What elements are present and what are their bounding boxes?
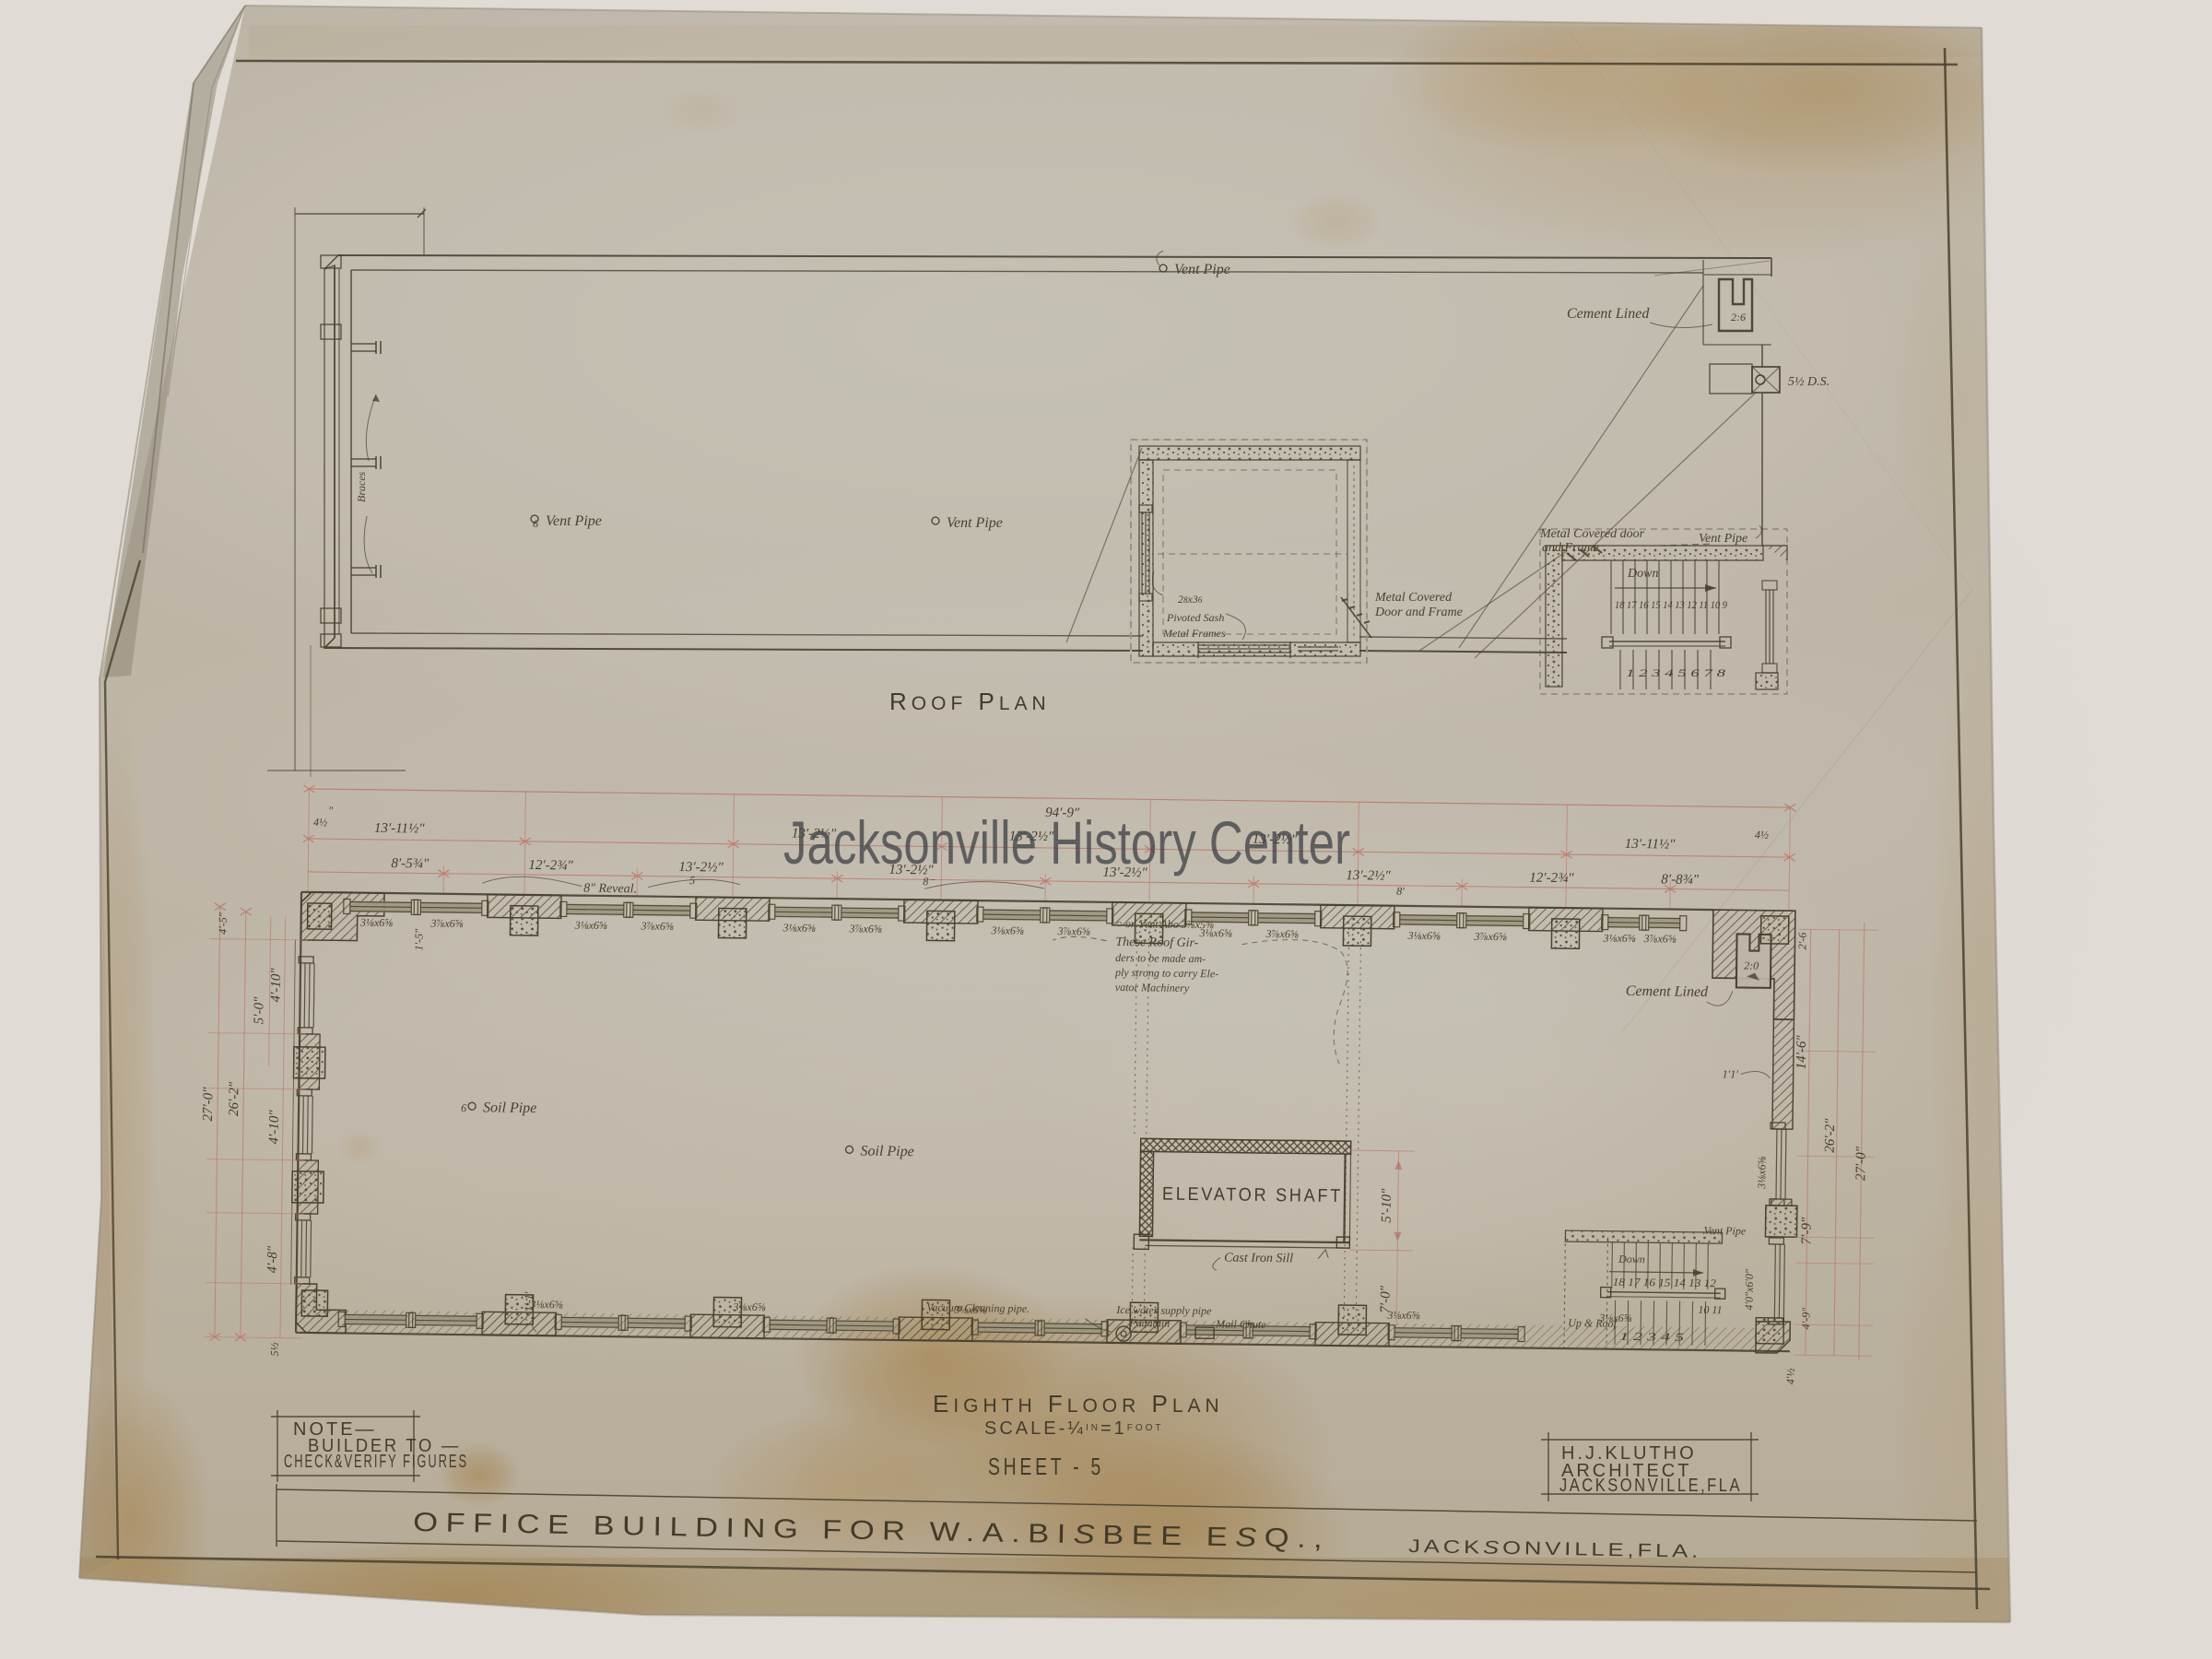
svg-text:Down: Down xyxy=(1618,1253,1645,1265)
svg-text:8⁻: 8⁻ xyxy=(923,875,935,888)
svg-text:Cement Lined: Cement Lined xyxy=(1567,306,1650,322)
svg-text:8′: 8′ xyxy=(1396,885,1405,898)
svg-text:Ice water supply pipe: Ice water supply pipe xyxy=(1115,1303,1212,1317)
svg-text:○ on Vent Abo 3⅞x5⅝: ○ on Vent Abo 3⅞x5⅝ xyxy=(1116,917,1215,931)
svg-text:Braces: Braces xyxy=(355,471,368,502)
svg-text:3⅞x6⅝: 3⅞x6⅝ xyxy=(1642,932,1677,945)
svg-text:3⅛x6⅝: 3⅛x6⅝ xyxy=(574,919,608,932)
svg-text:1′1′: 1′1′ xyxy=(1723,1067,1739,1080)
svg-text:Cast Iron Sill: Cast Iron Sill xyxy=(1224,1251,1293,1265)
svg-text:3⅛x6⅝: 3⅛x6⅝ xyxy=(1406,929,1441,942)
svg-text:26′-2″: 26′-2″ xyxy=(1823,1118,1838,1153)
svg-text:Up & Roof: Up & Roof xyxy=(1568,1316,1618,1330)
svg-text:6: 6 xyxy=(461,1101,466,1114)
svg-text:1 2 3 4 5 6 7 8: 1 2 3 4 5 6 7 8 xyxy=(1626,666,1725,679)
svg-text:3⅞x6⅝: 3⅞x6⅝ xyxy=(849,922,883,935)
svg-text:3⅛x6⅝: 3⅛x6⅝ xyxy=(359,916,394,929)
svg-text:Pivoted Sash: Pivoted Sash xyxy=(1166,611,1224,624)
svg-text:Vent Pipe: Vent Pipe xyxy=(1699,532,1747,546)
svg-text:3⅞x6⅝: 3⅞x6⅝ xyxy=(1056,924,1090,937)
svg-text:5½: 5½ xyxy=(268,1342,281,1356)
svg-text:3⅛x6⅝: 3⅛x6⅝ xyxy=(732,1300,766,1313)
svg-text:2:0: 2:0 xyxy=(1744,959,1759,972)
svg-text:3⅛x6⅝: 3⅛x6⅝ xyxy=(782,921,817,934)
svg-text:5½ D.S.: 5½ D.S. xyxy=(1788,375,1830,389)
svg-text:Vacuum Cleaning pipe.: Vacuum Cleaning pipe. xyxy=(926,1300,1030,1314)
svg-text:18 17 16 15 14 13 12 11 10 9: 18 17 16 15 14 13 12 11 10 9 xyxy=(1615,598,1727,611)
svg-text:3⅛x6⅝: 3⅛x6⅝ xyxy=(1755,1156,1768,1190)
svg-text:4′-9″: 4′-9″ xyxy=(1799,1307,1812,1330)
svg-text:Jacksonville History Center: Jacksonville History Center xyxy=(783,808,1350,877)
svg-text:Metal Covered door: Metal Covered door xyxy=(1539,527,1645,541)
svg-text:27′-0″: 27′-0″ xyxy=(201,1087,216,1122)
svg-text:13′-11½″: 13′-11½″ xyxy=(374,821,426,837)
svg-text:Mail Chute: Mail Chute xyxy=(1215,1317,1266,1331)
svg-text:7′-9″: 7′-9″ xyxy=(1799,1217,1814,1244)
svg-text:Door and Frame: Door and Frame xyxy=(1374,606,1463,619)
svg-text:ply strong to carry Ele-: ply strong to carry Ele- xyxy=(1114,966,1218,980)
svg-text:13′-2½″: 13′-2½″ xyxy=(678,860,724,876)
svg-text:18 17 16 15 14 13 12: 18 17 16 15 14 13 12 xyxy=(1613,1276,1716,1289)
svg-text:1′-1′: 1′-1′ xyxy=(522,1291,535,1312)
svg-text:4′-5″: 4′-5″ xyxy=(216,912,229,935)
svg-text:Fountain: Fountain xyxy=(1128,1316,1170,1330)
svg-text:JACKSONVILLE,FLA: JACKSONVILLE,FLA xyxy=(1559,1476,1742,1496)
svg-text:8″ Reveal.: 8″ Reveal. xyxy=(583,882,637,897)
svg-text:4′½: 4′½ xyxy=(1783,1368,1796,1384)
svg-text:Vent Pipe: Vent Pipe xyxy=(947,515,1003,531)
svg-text:SHEET - 5: SHEET - 5 xyxy=(988,1453,1104,1480)
svg-text:27′-0″: 27′-0″ xyxy=(1853,1146,1868,1181)
svg-text:Cement Lined: Cement Lined xyxy=(1626,983,1710,1000)
svg-text:3⅞x6⅝: 3⅞x6⅝ xyxy=(641,919,675,932)
svg-text:4′0″x6′0″: 4′0″x6′0″ xyxy=(1742,1268,1756,1311)
svg-text:Down: Down xyxy=(1627,567,1658,581)
svg-text:Soil Pipe: Soil Pipe xyxy=(860,1143,913,1159)
svg-text:13′-2½″: 13′-2½″ xyxy=(1346,868,1391,884)
svg-text:3⅛x6⅝: 3⅛x6⅝ xyxy=(990,924,1024,936)
svg-text:Soil Pipe: Soil Pipe xyxy=(483,1100,536,1116)
svg-text:1′-5″: 1′-5″ xyxy=(412,928,425,951)
svg-text:4′-8″: 4′-8″ xyxy=(265,1245,280,1273)
svg-text:3⅞x6⅝: 3⅞x6⅝ xyxy=(429,917,464,930)
svg-text:Vent Pipe: Vent Pipe xyxy=(1174,262,1230,277)
svg-text:3⅛x6⅝: 3⅛x6⅝ xyxy=(1602,932,1636,945)
svg-text:2:6: 2:6 xyxy=(1731,311,1746,324)
svg-text:4½: 4½ xyxy=(313,816,327,829)
svg-text:26′-2″: 26′-2″ xyxy=(227,1081,241,1116)
svg-text:8′-8¾″: 8′-8¾″ xyxy=(1661,872,1700,888)
svg-text:3⅞x6⅝: 3⅞x6⅝ xyxy=(1265,927,1299,940)
svg-text:14′-6″: 14′-6″ xyxy=(1794,1034,1809,1069)
svg-text:5′-10″: 5′-10″ xyxy=(1380,1188,1394,1223)
svg-text:4½: 4½ xyxy=(1755,829,1769,841)
svg-text:CHECK&VERIFY FIGURES: CHECK&VERIFY FIGURES xyxy=(284,1452,468,1472)
svg-text:These Roof Gir-: These Roof Gir- xyxy=(1115,935,1198,950)
svg-text:Vent Pipe: Vent Pipe xyxy=(546,513,602,529)
svg-text:ders to be made am-: ders to be made am- xyxy=(1115,951,1206,965)
svg-text:3⅞x6⅝: 3⅞x6⅝ xyxy=(1473,930,1507,943)
svg-text:12′-2¾″: 12′-2¾″ xyxy=(1529,871,1574,887)
svg-text:Metal Frames: Metal Frames xyxy=(1162,627,1226,640)
svg-text:and Frame: and Frame xyxy=(1542,541,1599,555)
svg-text:5: 5 xyxy=(689,874,695,887)
svg-text:28x36: 28x36 xyxy=(1178,593,1203,606)
svg-text:13′-11½″: 13′-11½″ xyxy=(1625,837,1677,853)
svg-text:1 2 3 4 5: 1 2 3 4 5 xyxy=(1619,1330,1684,1344)
svg-text:vator Machinery: vator Machinery xyxy=(1115,981,1190,994)
svg-text:4′-10″: 4′-10″ xyxy=(269,968,284,1003)
svg-text:10 11: 10 11 xyxy=(1698,1303,1722,1316)
svg-text:Metal Covered: Metal Covered xyxy=(1374,591,1453,605)
svg-text:2′-6: 2′-6 xyxy=(1795,933,1808,950)
svg-text:12′-2¾″: 12′-2¾″ xyxy=(528,858,573,874)
svg-text:ELEVATOR SHAFT: ELEVATOR SHAFT xyxy=(1162,1184,1343,1206)
svg-text:5′-0″: 5′-0″ xyxy=(252,996,266,1024)
svg-text:8′-5¾″: 8′-5¾″ xyxy=(391,856,429,872)
svg-text:7′-0″: 7′-0″ xyxy=(1378,1285,1393,1312)
svg-text:4′-10″: 4′-10″ xyxy=(267,1110,282,1145)
svg-text:6: 6 xyxy=(533,517,538,530)
